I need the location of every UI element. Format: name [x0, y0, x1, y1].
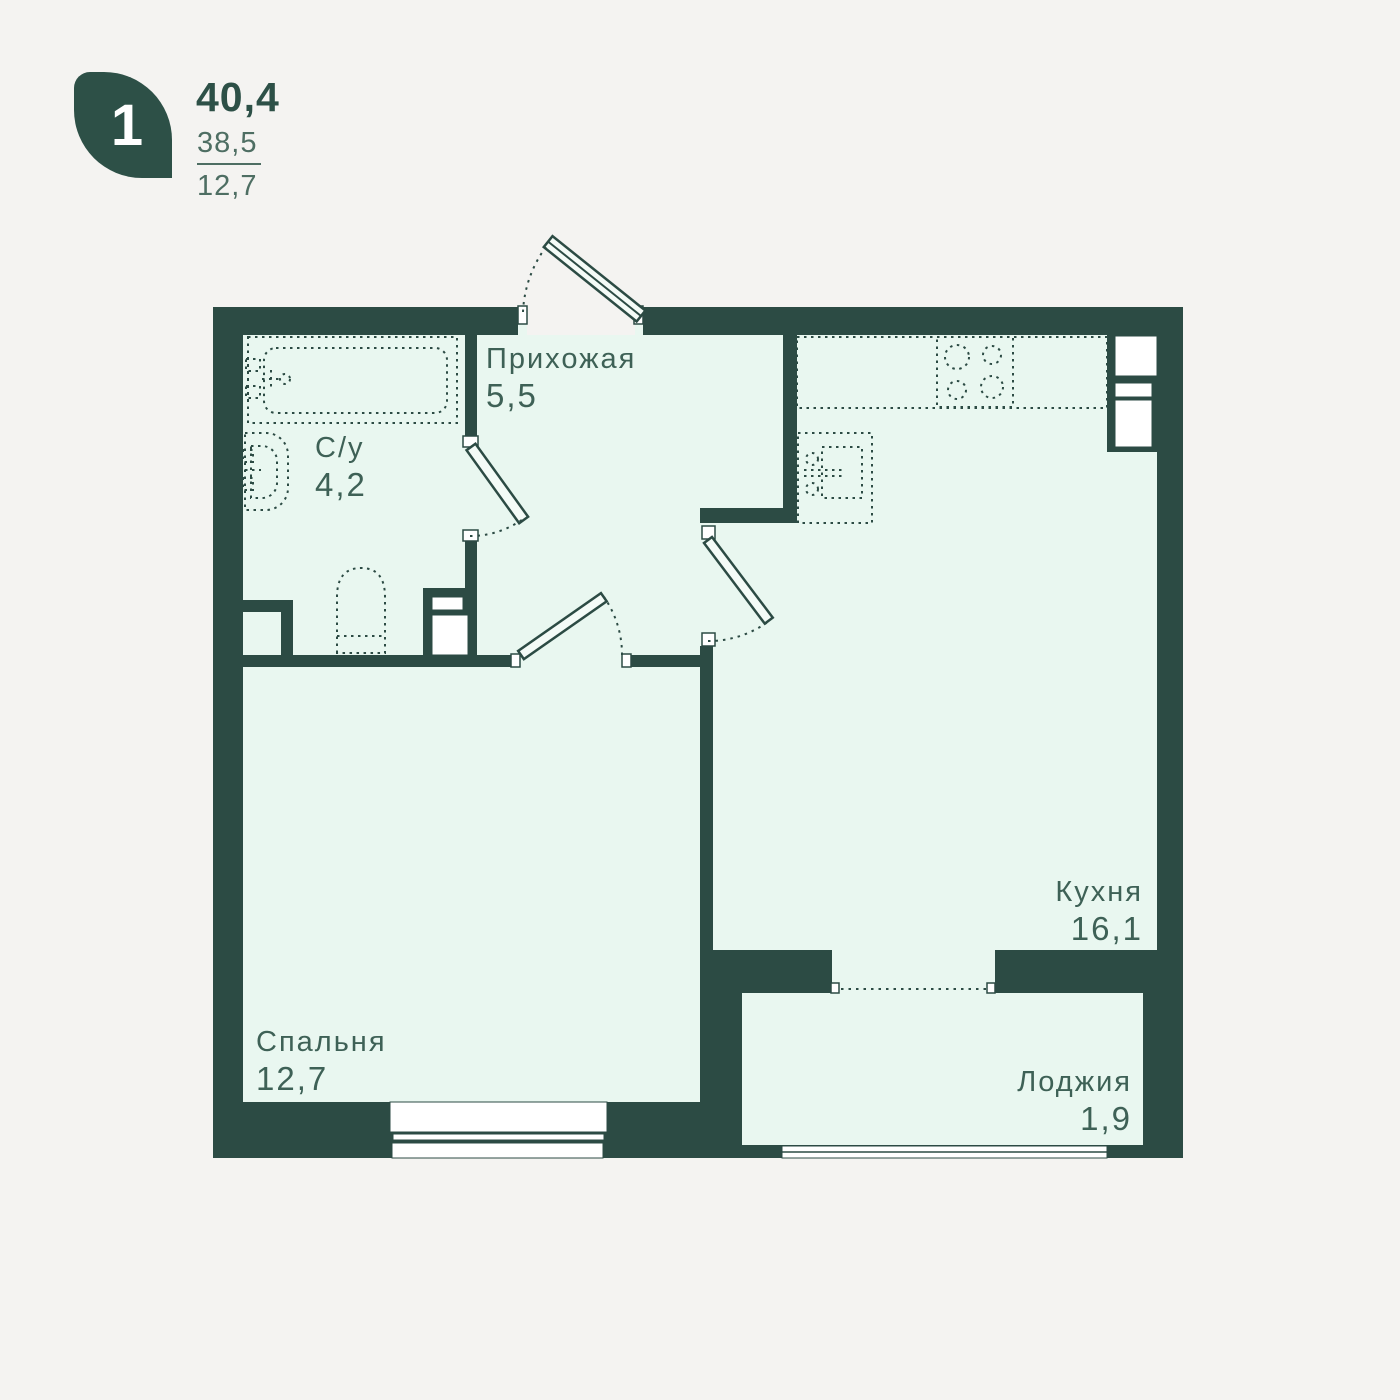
room-label-bedroom: Спальня 12,7	[256, 1028, 387, 1095]
room-label-kitchen: Кухня 16,1	[943, 878, 1143, 945]
room-name: Кухня	[943, 878, 1143, 907]
room-name: Спальня	[256, 1028, 387, 1057]
room-name: Прихожая	[486, 345, 636, 374]
bedroom-window	[390, 1102, 607, 1158]
floor-plan-svg	[0, 0, 1400, 1400]
room-area-value: 5,5	[486, 379, 636, 412]
room-area-value: 1,9	[932, 1102, 1132, 1135]
room-area-value: 12,7	[256, 1062, 387, 1095]
entrance-opening	[527, 306, 635, 335]
loggia-window	[782, 1146, 1107, 1158]
room-label-loggia: Лоджия 1,9	[932, 1068, 1132, 1135]
room-label-hallway: Прихожая 5,5	[486, 345, 636, 412]
room-area-value: 4,2	[315, 468, 367, 501]
room-name: С/у	[315, 434, 367, 463]
room-name: Лоджия	[932, 1068, 1132, 1097]
entrance-door-arc	[523, 243, 549, 312]
room-area-value: 16,1	[943, 912, 1143, 945]
room-label-bathroom: С/у 4,2	[315, 434, 367, 501]
floor-plan-page: 1 40,4 38,5 12,7	[0, 0, 1400, 1400]
